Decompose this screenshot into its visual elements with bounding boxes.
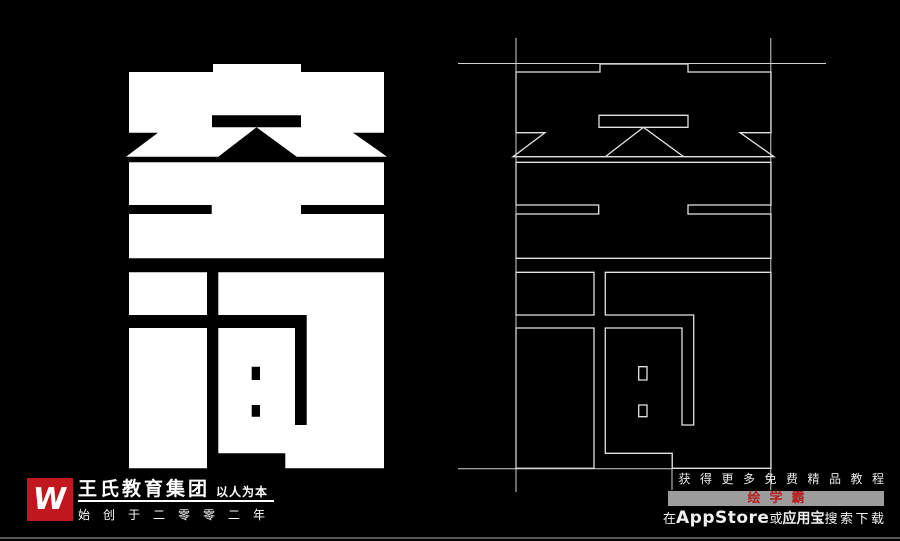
kong-gong-outline: [516, 162, 771, 258]
bottom-border-line: [0, 537, 900, 539]
brand-divider-line: [78, 500, 274, 502]
company-since-text: 始创于二零零二年: [78, 506, 278, 523]
company-slogan: 以人为本: [216, 483, 268, 500]
app-name-text: 绘学霸: [747, 492, 813, 505]
jian-leftbar-outline: [516, 328, 594, 468]
kong-roof-solid: [126, 64, 387, 157]
company-name: 王氏教育集团: [78, 474, 210, 501]
kong-gong-solid: [129, 162, 384, 258]
construction-lines: [458, 38, 826, 492]
download-or: 或: [769, 508, 782, 527]
promo-headline: 获得更多免费精品教程: [668, 470, 894, 487]
kong-roof-outline: [513, 64, 774, 157]
jian-tick-outline: [516, 272, 594, 315]
glyph-art-outline: [513, 64, 774, 468]
yingyongbao-label: 应用宝: [782, 508, 824, 528]
download-suffix: 搜索下载: [824, 508, 886, 527]
appstore-label: AppStore: [676, 508, 769, 528]
app-name-badge: 绘学霸: [668, 491, 884, 506]
jian-leftbar-solid: [129, 328, 207, 468]
brand-logo-w-icon: W: [31, 485, 68, 515]
jian-body-solid: [218, 272, 384, 468]
promo-block: 获得更多免费精品教程 绘学霸 在 AppStore 或 应用宝 搜索下载: [668, 470, 884, 528]
glyph-art-solid: [126, 64, 387, 468]
brand-logo-mark: W: [27, 478, 73, 521]
download-prefix: 在: [663, 508, 676, 527]
jian-body-outline: [605, 272, 771, 468]
glyph-artwork: 空间: [0, 0, 900, 541]
download-instruction: 在 AppStore 或 应用宝 搜索下载: [668, 508, 884, 528]
poster-canvas: 空间 W 王氏教育集团 以人为本 始创于二: [0, 0, 900, 541]
jian-tick-solid: [129, 272, 207, 315]
